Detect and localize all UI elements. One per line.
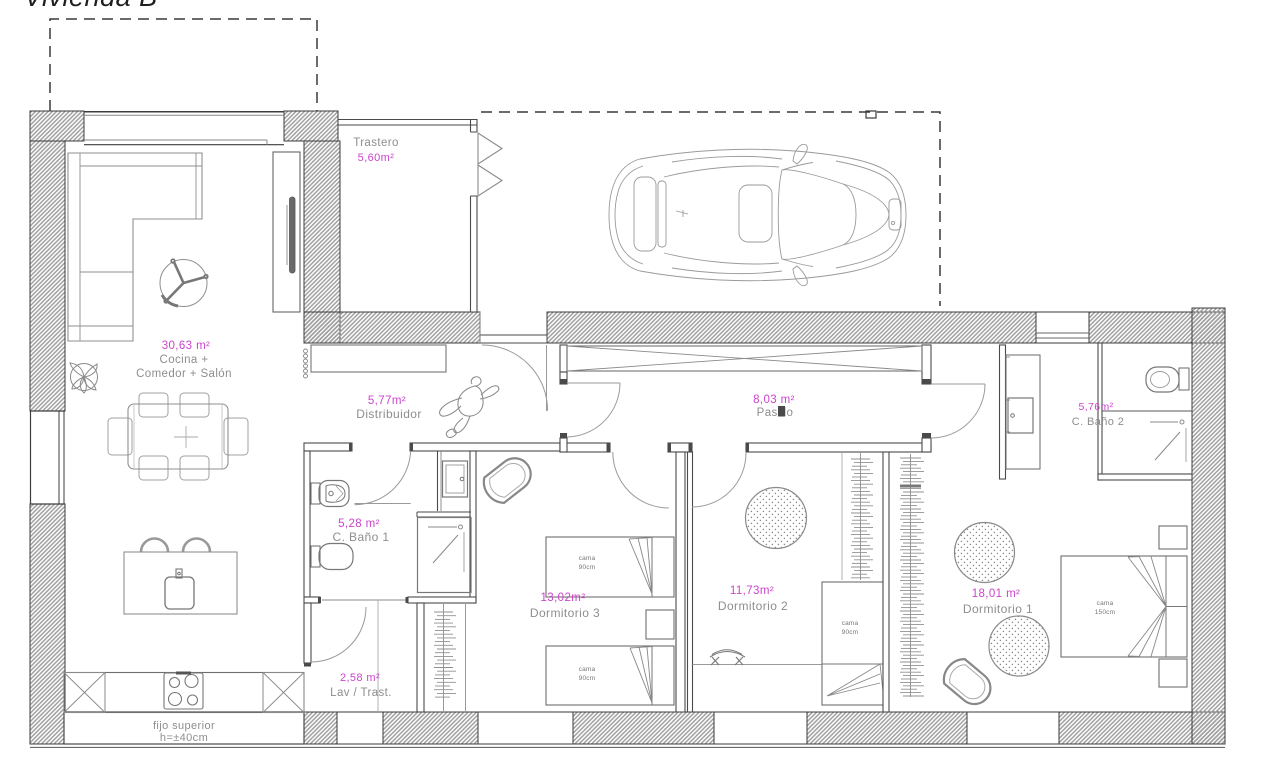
svg-text:150cm: 150cm (1095, 609, 1116, 616)
svg-text:cama: cama (579, 666, 596, 673)
svg-text:Cocina +: Cocina + (160, 354, 209, 366)
svg-text:11,73m²: 11,73m² (730, 585, 774, 597)
svg-text:5,76m²: 5,76m² (1078, 401, 1113, 413)
svg-text:5,28 m²: 5,28 m² (338, 518, 380, 530)
svg-text:Comedor + Salón: Comedor + Salón (136, 368, 232, 380)
svg-text:18,01 m²: 18,01 m² (972, 588, 1021, 600)
svg-text:5,77m²: 5,77m² (368, 395, 406, 407)
svg-text:Pasillo: Pasillo (757, 407, 794, 419)
svg-text:cama: cama (1097, 600, 1114, 607)
svg-text:5,60m²: 5,60m² (358, 152, 395, 164)
svg-text:13,02m²: 13,02m² (541, 592, 586, 604)
svg-text:Trastero: Trastero (353, 137, 399, 149)
svg-text:30,63 m²: 30,63 m² (162, 340, 211, 352)
svg-text:cama: cama (579, 555, 596, 562)
svg-text:Distribuidor: Distribuidor (356, 407, 422, 421)
svg-text:90cm: 90cm (579, 675, 596, 682)
svg-text:2,58 m²: 2,58 m² (340, 672, 380, 684)
svg-text:Dormitorio 2: Dormitorio 2 (718, 599, 788, 613)
svg-text:C. Baño 1: C. Baño 1 (333, 530, 390, 544)
svg-text:h=±40cm: h=±40cm (160, 732, 208, 744)
svg-text:90cm: 90cm (579, 564, 596, 571)
svg-text:Lav / Trast.: Lav / Trast. (330, 687, 392, 699)
svg-text:8,03 m²: 8,03 m² (753, 394, 795, 406)
svg-text:Vivienda B: Vivienda B (24, 0, 158, 12)
svg-text:C. Baño 2: C. Baño 2 (1072, 416, 1125, 428)
svg-text:fijo superior: fijo superior (153, 720, 215, 732)
svg-text:Dormitorio 1: Dormitorio 1 (963, 602, 1033, 616)
svg-text:90cm: 90cm (842, 629, 859, 636)
svg-text:cama: cama (842, 620, 859, 627)
svg-text:Dormitorio 3: Dormitorio 3 (530, 606, 600, 620)
